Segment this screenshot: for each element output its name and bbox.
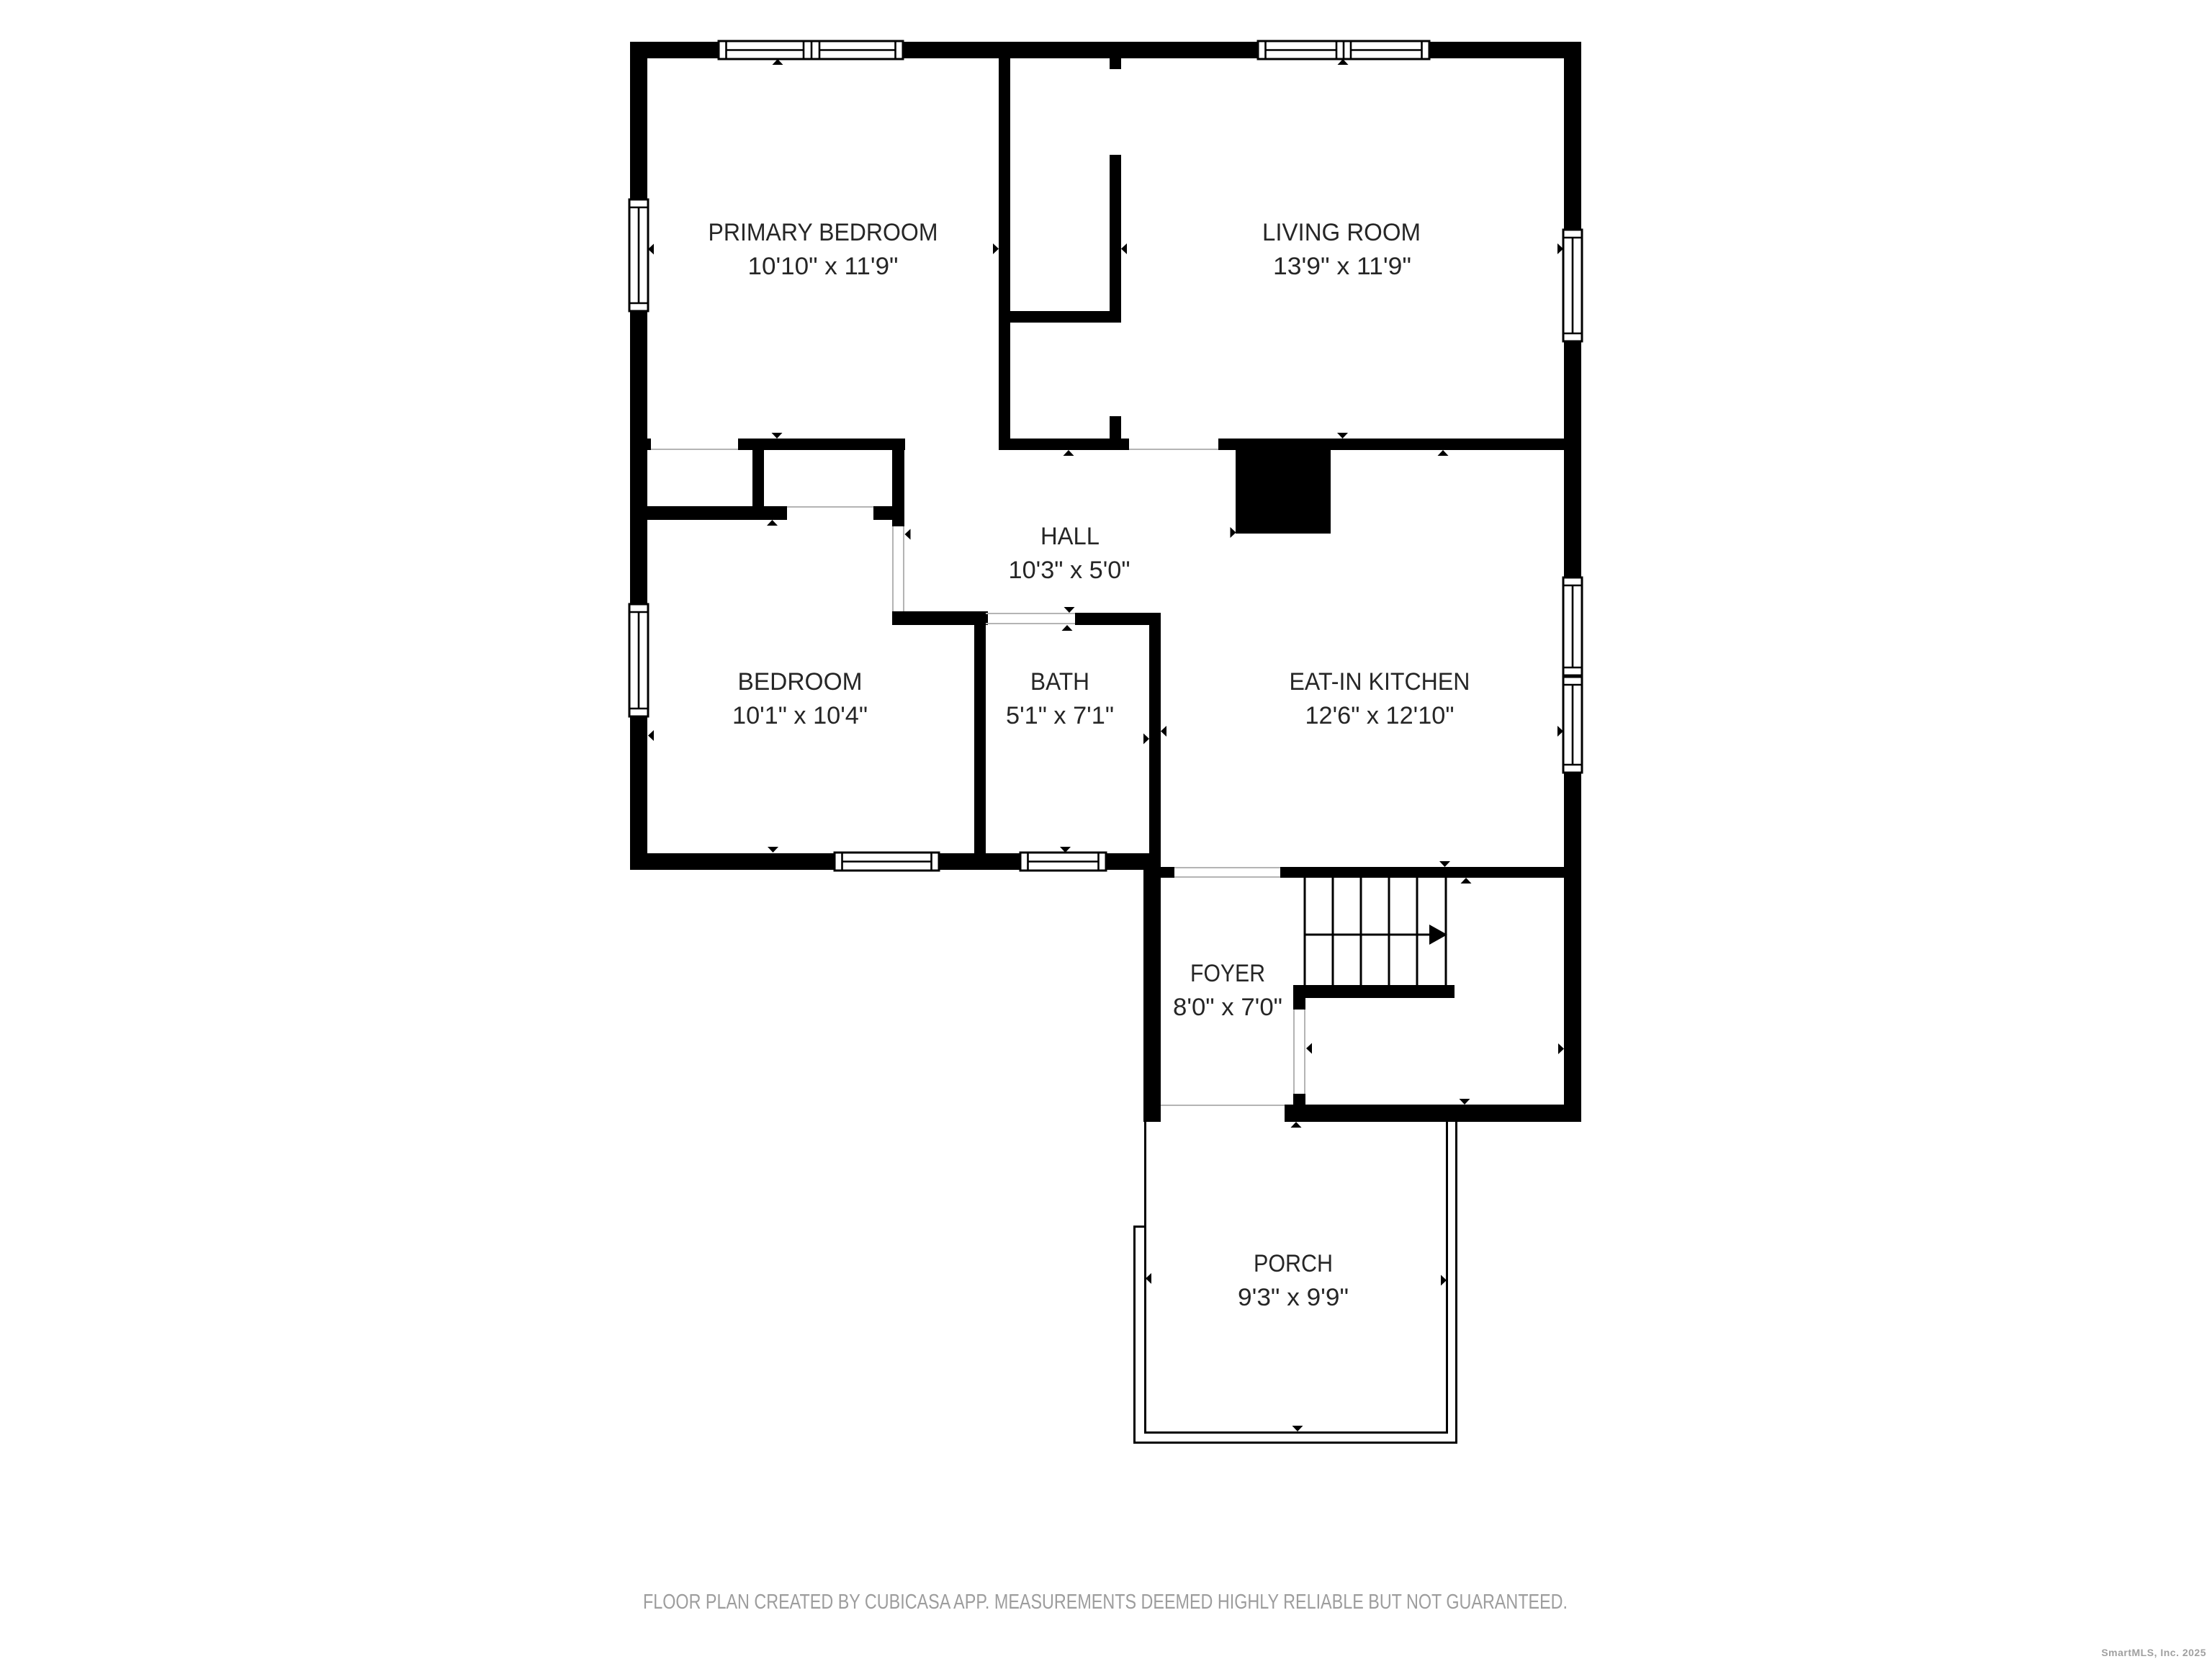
- svg-text:FLOOR PLAN CREATED BY CUBICASA: FLOOR PLAN CREATED BY CUBICASA APP. MEAS…: [643, 1591, 1568, 1614]
- svg-text:13'9" x 11'9": 13'9" x 11'9": [1273, 253, 1411, 280]
- svg-text:BATH: BATH: [1030, 668, 1089, 696]
- svg-text:FOYER: FOYER: [1190, 960, 1265, 987]
- svg-text:9'3" x 9'9": 9'3" x 9'9": [1238, 1284, 1349, 1311]
- svg-text:10'10" x 11'9": 10'10" x 11'9": [748, 253, 899, 280]
- svg-text:PORCH: PORCH: [1254, 1250, 1333, 1277]
- svg-text:LIVING ROOM: LIVING ROOM: [1262, 219, 1421, 246]
- svg-text:EAT-IN KITCHEN: EAT-IN KITCHEN: [1290, 668, 1470, 696]
- svg-text:BEDROOM: BEDROOM: [738, 668, 863, 696]
- svg-text:PRIMARY BEDROOM: PRIMARY BEDROOM: [709, 219, 938, 246]
- svg-text:10'3" x 5'0": 10'3" x 5'0": [1009, 557, 1130, 584]
- svg-text:5'1" x 7'1": 5'1" x 7'1": [1006, 702, 1114, 729]
- svg-text:12'6" x 12'10": 12'6" x 12'10": [1305, 702, 1455, 729]
- svg-text:10'1" x 10'4": 10'1" x 10'4": [732, 702, 868, 729]
- svg-text:SmartMLS, Inc. 2025: SmartMLS, Inc. 2025: [2101, 1647, 2206, 1658]
- svg-text:8'0" x 7'0": 8'0" x 7'0": [1173, 994, 1282, 1021]
- svg-text:HALL: HALL: [1040, 523, 1100, 550]
